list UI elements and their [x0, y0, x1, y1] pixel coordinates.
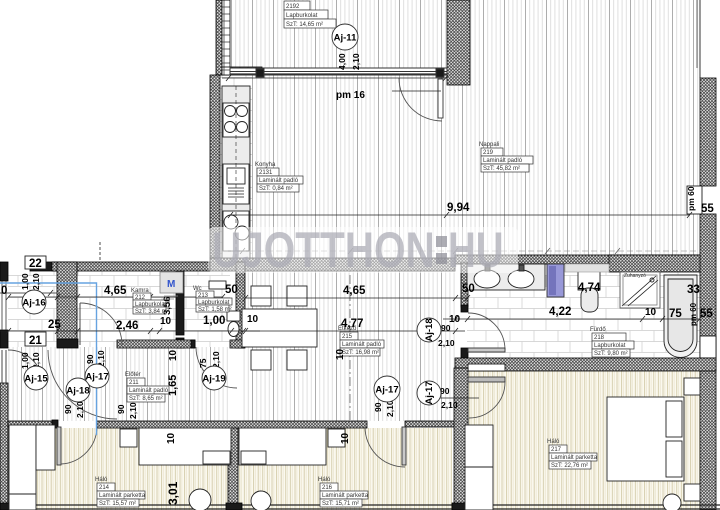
svg-text:4,65: 4,65 [343, 285, 366, 297]
svg-text:Laminált parketta: Laminált parketta [551, 455, 598, 461]
svg-text:SzT: 16,98 m²: SzT: 16,98 m² [342, 350, 379, 356]
svg-text:SzT: 22,76 m²: SzT: 22,76 m² [551, 463, 588, 469]
svg-text:2,10: 2,10 [441, 400, 458, 410]
svg-text:9,94: 9,94 [447, 202, 470, 214]
svg-text:Laminált parketta: Laminált parketta [99, 493, 146, 499]
svg-text:4,00: 4,00 [337, 53, 347, 70]
svg-text:75: 75 [669, 308, 682, 320]
svg-text:10: 10 [166, 432, 177, 444]
svg-text:Aj-17: Aj-17 [85, 372, 108, 383]
svg-text:1,00: 1,00 [20, 273, 30, 290]
svg-text:10: 10 [449, 314, 461, 325]
svg-text:212: 212 [135, 295, 146, 301]
svg-text:Nappali: Nappali [479, 142, 499, 148]
svg-text:2131: 2131 [259, 170, 273, 176]
svg-text:75: 75 [198, 358, 208, 368]
svg-text:214: 214 [99, 485, 110, 491]
svg-text:SzT: 1,58 m²: SzT: 1,58 m² [198, 307, 232, 313]
svg-text:Laminált padló: Laminált padló [259, 178, 299, 184]
svg-text:Aj-16: Aj-16 [22, 298, 45, 309]
svg-text:SzT: 45,82 m²: SzT: 45,82 m² [483, 166, 520, 172]
svg-text:Aj-11: Aj-11 [334, 33, 357, 44]
svg-text:SzT: 15,71 m²: SzT: 15,71 m² [322, 501, 359, 507]
svg-text:M: M [167, 279, 175, 290]
svg-text:Lapburkolat: Lapburkolat [594, 343, 626, 349]
svg-text:216: 216 [322, 485, 333, 491]
svg-text:50: 50 [225, 284, 238, 296]
svg-text:21: 21 [29, 335, 42, 347]
svg-text:1,65: 1,65 [167, 375, 179, 396]
svg-text:1,00: 1,00 [20, 352, 30, 369]
svg-text:90: 90 [441, 323, 451, 333]
svg-text:4,65: 4,65 [104, 285, 127, 297]
svg-text:4,77: 4,77 [341, 318, 363, 330]
svg-text:SzT: 9,80 m²: SzT: 9,80 m² [594, 351, 628, 357]
svg-text:215: 215 [342, 334, 353, 340]
svg-text:Aj-17: Aj-17 [375, 385, 398, 396]
svg-text:10: 10 [340, 432, 351, 444]
svg-text:33: 33 [687, 284, 700, 296]
svg-text:90: 90 [116, 404, 126, 414]
svg-text:2,10: 2,10 [438, 338, 455, 348]
svg-text:SzT: 15,57 m²: SzT: 15,57 m² [99, 501, 136, 507]
svg-text:10: 10 [335, 348, 346, 360]
svg-text:Laminált padló: Laminált padló [483, 158, 523, 164]
svg-text:SzT: 8,65 m²: SzT: 8,65 m² [129, 396, 163, 402]
svg-text:25: 25 [48, 319, 61, 331]
svg-text:4,74: 4,74 [578, 282, 601, 294]
svg-text:10: 10 [160, 316, 172, 327]
svg-text:Lapburkolat: Lapburkolat [286, 13, 318, 19]
svg-text:90: 90 [85, 354, 95, 364]
svg-text:55: 55 [701, 203, 714, 215]
svg-text:50: 50 [462, 283, 475, 295]
svg-text:Háló: Háló [318, 477, 331, 483]
svg-text:Laminált padló: Laminált padló [342, 342, 382, 348]
svg-text:2,10: 2,10 [211, 351, 221, 368]
svg-text:211: 211 [129, 380, 139, 386]
svg-text:SzT: 0,84 m²: SzT: 0,84 m² [259, 186, 293, 192]
svg-text:218: 218 [594, 335, 605, 341]
svg-text:Aj-15: Aj-15 [24, 374, 48, 385]
svg-text:Fürdő: Fürdő [590, 327, 606, 333]
svg-text:pm 60: pm 60 [689, 302, 698, 326]
svg-text:2,10: 2,10 [31, 273, 41, 290]
svg-text:0: 0 [1, 285, 7, 297]
svg-text:10: 10 [168, 349, 179, 361]
svg-text:2,10: 2,10 [351, 53, 361, 70]
svg-text:2,10: 2,10 [385, 400, 395, 417]
svg-text:2,10: 2,10 [128, 402, 138, 419]
svg-text:2,46: 2,46 [116, 320, 138, 332]
svg-text:22: 22 [29, 258, 42, 270]
svg-text:1,00: 1,00 [203, 315, 225, 327]
svg-text:pm 16: pm 16 [336, 90, 365, 101]
svg-text:SzT: 14,65 m²: SzT: 14,65 m² [286, 22, 323, 28]
svg-text:Aj-18: Aj-18 [66, 386, 89, 397]
svg-text:HU: HU [448, 223, 504, 278]
svg-text:10: 10 [247, 314, 259, 325]
svg-text:217: 217 [551, 447, 562, 453]
svg-text:55: 55 [700, 308, 713, 320]
svg-text:Háló: Háló [95, 477, 108, 483]
svg-text:219: 219 [483, 150, 494, 156]
svg-text:2,10: 2,10 [75, 401, 85, 418]
svg-text:4,22: 4,22 [549, 306, 571, 318]
svg-text:Laminált parketta: Laminált parketta [322, 493, 369, 499]
svg-text:90: 90 [440, 386, 450, 396]
svg-text:Laminált padló: Laminált padló [129, 388, 169, 394]
svg-text:10: 10 [645, 307, 657, 318]
svg-text:2192: 2192 [286, 4, 300, 10]
svg-text:UJOTTHON: UJOTTHON [212, 222, 435, 278]
svg-text:213: 213 [198, 293, 209, 299]
svg-text:90: 90 [63, 404, 73, 414]
svg-text:Lapburkolat: Lapburkolat [198, 300, 230, 306]
svg-text:90: 90 [373, 402, 383, 412]
svg-text:Konyha: Konyha [255, 162, 276, 168]
svg-text:3,01: 3,01 [166, 481, 180, 505]
svg-text:Aj-19: Aj-19 [202, 374, 225, 385]
svg-text:Háló: Háló [547, 439, 560, 445]
svg-text:Aj-17: Aj-17 [424, 381, 435, 404]
svg-text:Előtér: Előtér [125, 372, 141, 378]
svg-text:Aj-18: Aj-18 [424, 318, 435, 341]
svg-text:Zuhanyzó: Zuhanyzó [624, 273, 646, 279]
svg-text:pm 60: pm 60 [686, 186, 696, 211]
